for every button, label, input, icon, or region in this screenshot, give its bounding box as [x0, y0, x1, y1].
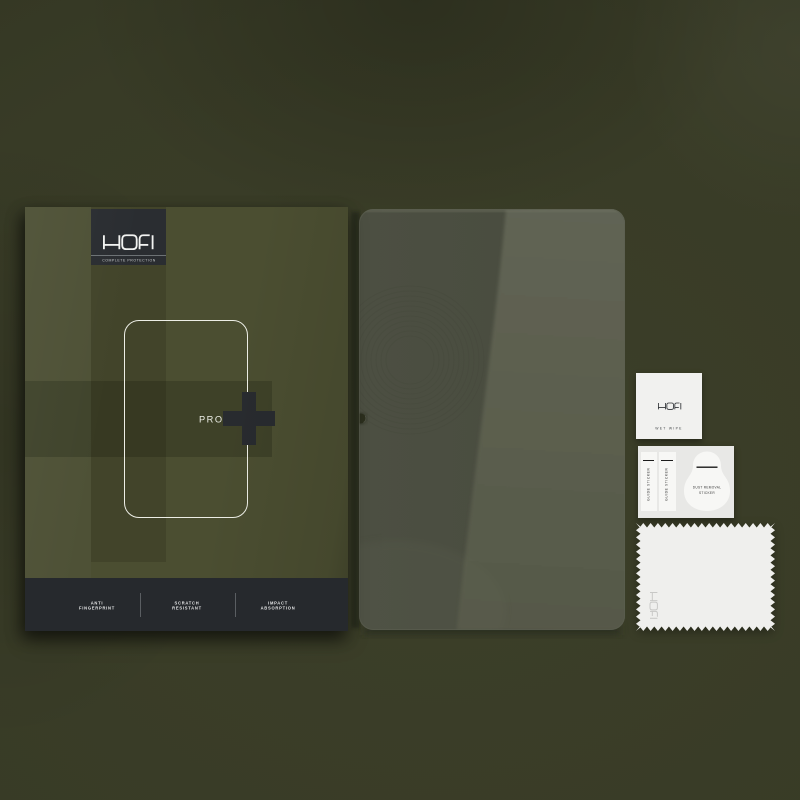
svg-text:DUST REMOVAL: DUST REMOVAL — [693, 486, 721, 490]
svg-text:STICKER: STICKER — [699, 491, 715, 495]
